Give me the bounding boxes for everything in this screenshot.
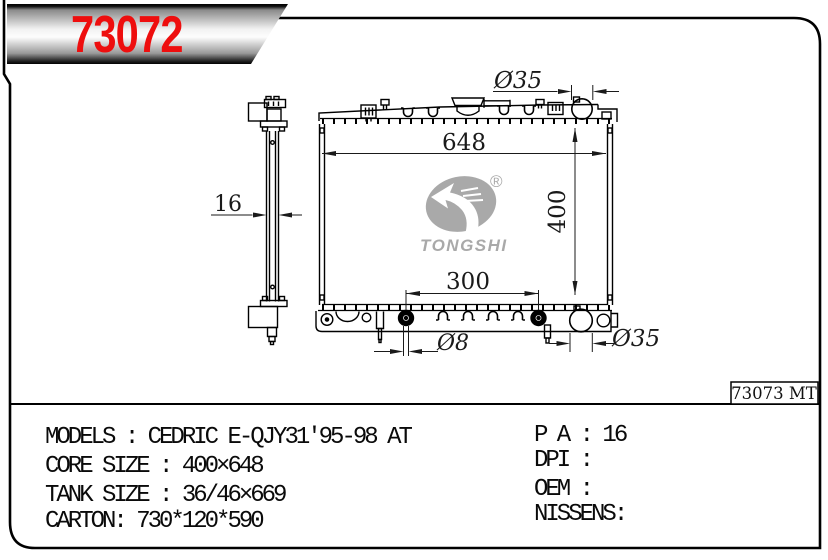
- part-number-text: 73072: [71, 9, 183, 61]
- catalog-page: ® TONGSHI 73073 MT: [0, 0, 828, 560]
- svg-text:Ø35: Ø35: [493, 68, 542, 94]
- part-number-banner: 73072: [7, 4, 288, 64]
- dim-outlet-dia: Ø35: [549, 326, 660, 352]
- mounting-pin-right: [531, 311, 546, 326]
- spec-core-size: CORE SIZE : 400×648: [45, 455, 262, 479]
- spec-tank-size: TANK SIZE : 36/46×669: [45, 484, 284, 508]
- spec-nissens: NISSENS:: [534, 503, 625, 527]
- svg-text:Ø8: Ø8: [436, 331, 469, 356]
- svg-text:16: 16: [214, 192, 242, 217]
- dim-pin-dia: Ø8: [374, 326, 469, 356]
- spec-pa: P A : 16: [534, 424, 625, 448]
- tongshi-logo-watermark: ® TONGSHI: [420, 170, 508, 255]
- stamp-box: 73073 MT: [731, 382, 818, 404]
- mounting-pin-left: [399, 311, 414, 326]
- registered-mark: ®: [490, 172, 503, 191]
- svg-text:300: 300: [446, 269, 490, 295]
- stamp-code-text: 73073 MT: [731, 384, 817, 403]
- watermark-brand-text: TONGSHI: [420, 236, 508, 255]
- spec-oem: OEM :: [534, 478, 591, 502]
- dim-inlet-dia: Ø35: [493, 68, 619, 100]
- svg-text:400: 400: [545, 190, 571, 234]
- spec-carton: CARTON: 730*120*590: [45, 510, 262, 534]
- svg-text:Ø35: Ø35: [611, 326, 660, 352]
- svg-text:648: 648: [442, 130, 486, 156]
- inlet-pipe: [572, 99, 592, 119]
- spec-dpi: DPI :: [534, 449, 591, 473]
- outlet-pipe: [570, 309, 593, 332]
- radiator-side-view: [249, 97, 288, 345]
- dim-16: 16: [211, 192, 302, 218]
- spec-models: MODELS : CEDRIC E-QJY31'95-98 AT: [45, 426, 410, 450]
- dim-648: 648: [322, 130, 606, 156]
- dim-300: 300: [406, 269, 539, 310]
- radiator-top-tank: [319, 97, 617, 122]
